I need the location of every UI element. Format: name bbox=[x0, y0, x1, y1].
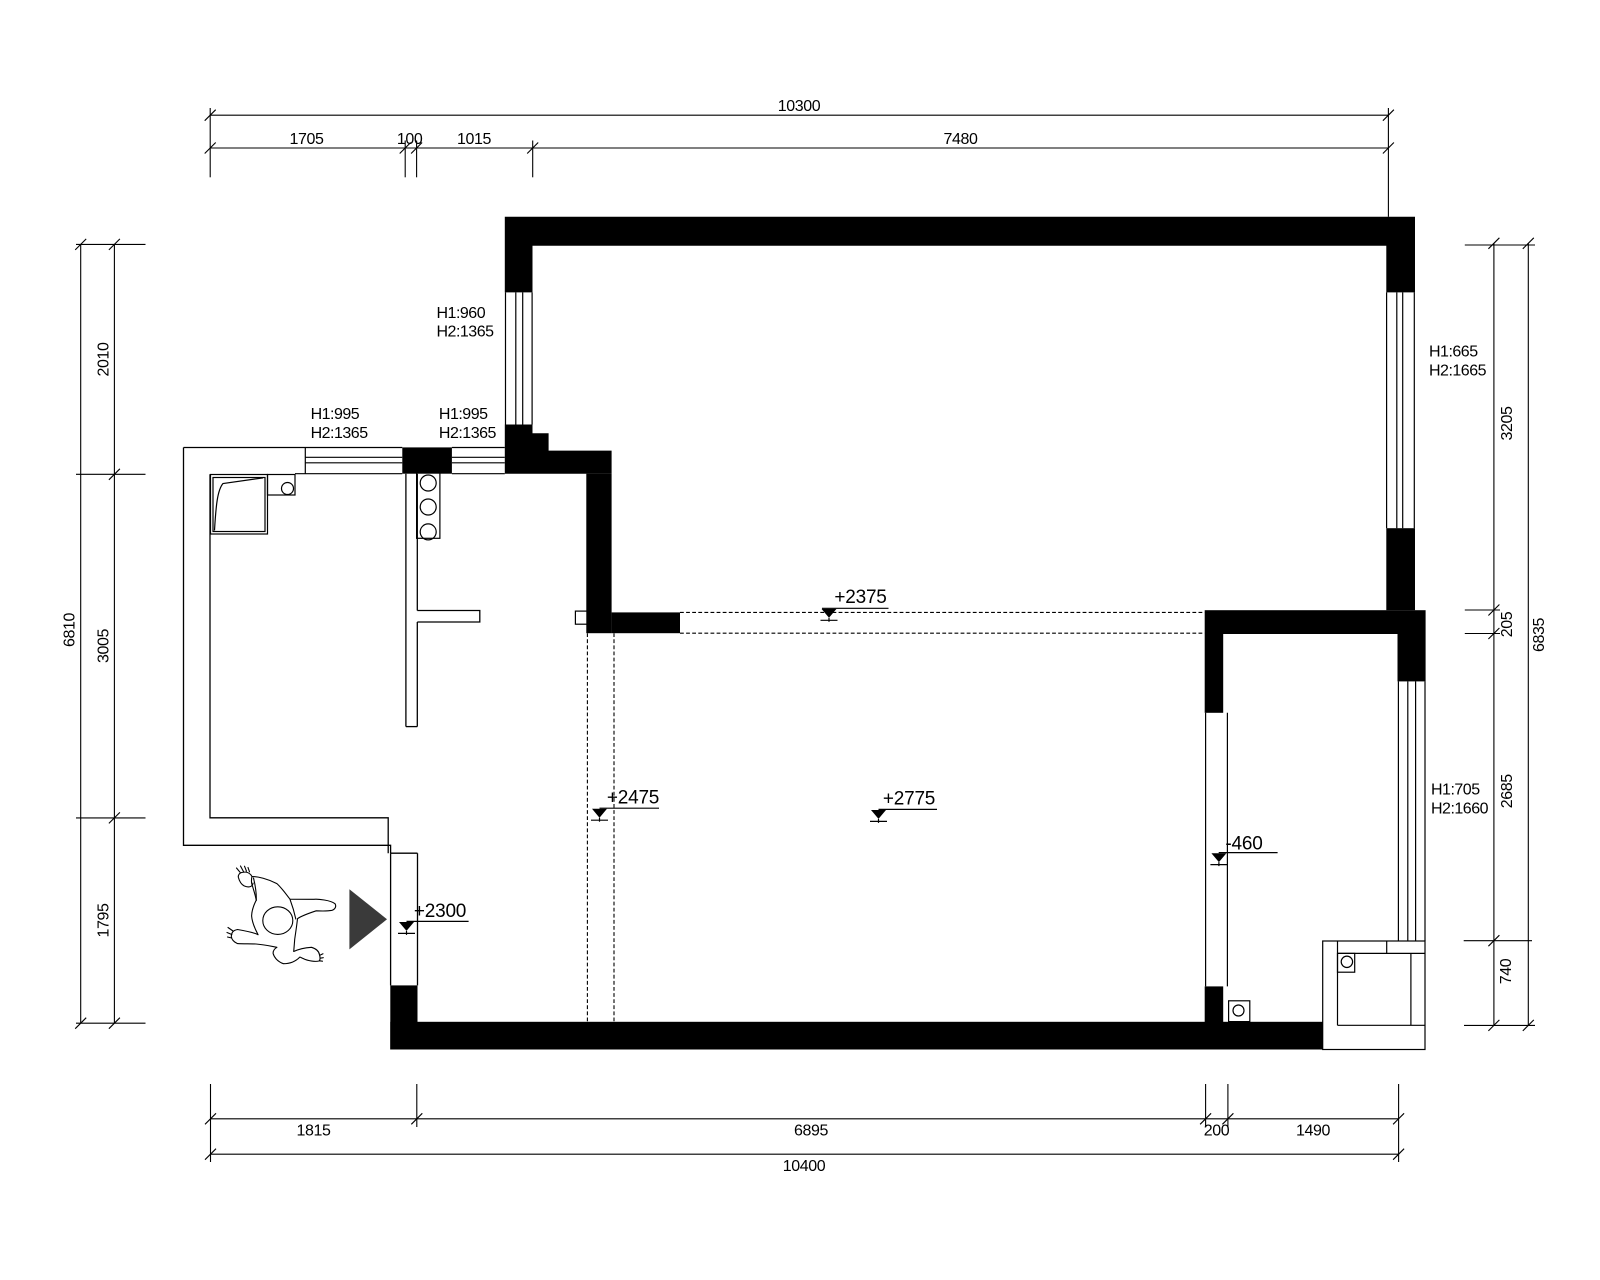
svg-text:H1:665: H1:665 bbox=[1429, 344, 1478, 361]
svg-text:200: 200 bbox=[1204, 1123, 1230, 1140]
svg-text:H1:995: H1:995 bbox=[439, 406, 488, 423]
svg-text:10300: 10300 bbox=[778, 98, 821, 115]
svg-text:+2375: +2375 bbox=[834, 587, 886, 608]
svg-text:10400: 10400 bbox=[783, 1158, 826, 1175]
svg-text:3205: 3205 bbox=[1499, 406, 1516, 440]
svg-text:1815: 1815 bbox=[297, 1123, 331, 1140]
svg-text:1705: 1705 bbox=[290, 131, 324, 148]
svg-text:H1:960: H1:960 bbox=[437, 305, 486, 322]
svg-text:100: 100 bbox=[397, 131, 423, 148]
svg-text:H2:1365: H2:1365 bbox=[311, 425, 369, 442]
svg-text:H2:1660: H2:1660 bbox=[1431, 801, 1489, 818]
svg-text:H1:705: H1:705 bbox=[1431, 782, 1480, 799]
svg-text:7480: 7480 bbox=[944, 131, 978, 148]
svg-text:H2:1665: H2:1665 bbox=[1429, 363, 1487, 380]
svg-text:2010: 2010 bbox=[96, 342, 113, 376]
svg-text:3005: 3005 bbox=[96, 629, 113, 663]
svg-text:+2300: +2300 bbox=[414, 901, 466, 922]
svg-text:6835: 6835 bbox=[1531, 618, 1548, 652]
svg-text:H2:1365: H2:1365 bbox=[437, 324, 495, 341]
svg-text:6895: 6895 bbox=[794, 1123, 828, 1140]
svg-text:740: 740 bbox=[1498, 958, 1515, 984]
svg-text:205: 205 bbox=[1499, 611, 1516, 637]
svg-text:1015: 1015 bbox=[457, 131, 491, 148]
svg-text:2685: 2685 bbox=[1499, 774, 1516, 808]
svg-text:1490: 1490 bbox=[1296, 1123, 1330, 1140]
svg-text:-460: -460 bbox=[1225, 834, 1262, 855]
svg-text:H2:1365: H2:1365 bbox=[439, 425, 497, 442]
svg-text:+2475: +2475 bbox=[607, 788, 659, 809]
svg-text:H1:995: H1:995 bbox=[311, 406, 360, 423]
svg-text:1795: 1795 bbox=[96, 903, 113, 937]
svg-text:6810: 6810 bbox=[62, 613, 79, 647]
svg-text:+2775: +2775 bbox=[883, 789, 935, 810]
